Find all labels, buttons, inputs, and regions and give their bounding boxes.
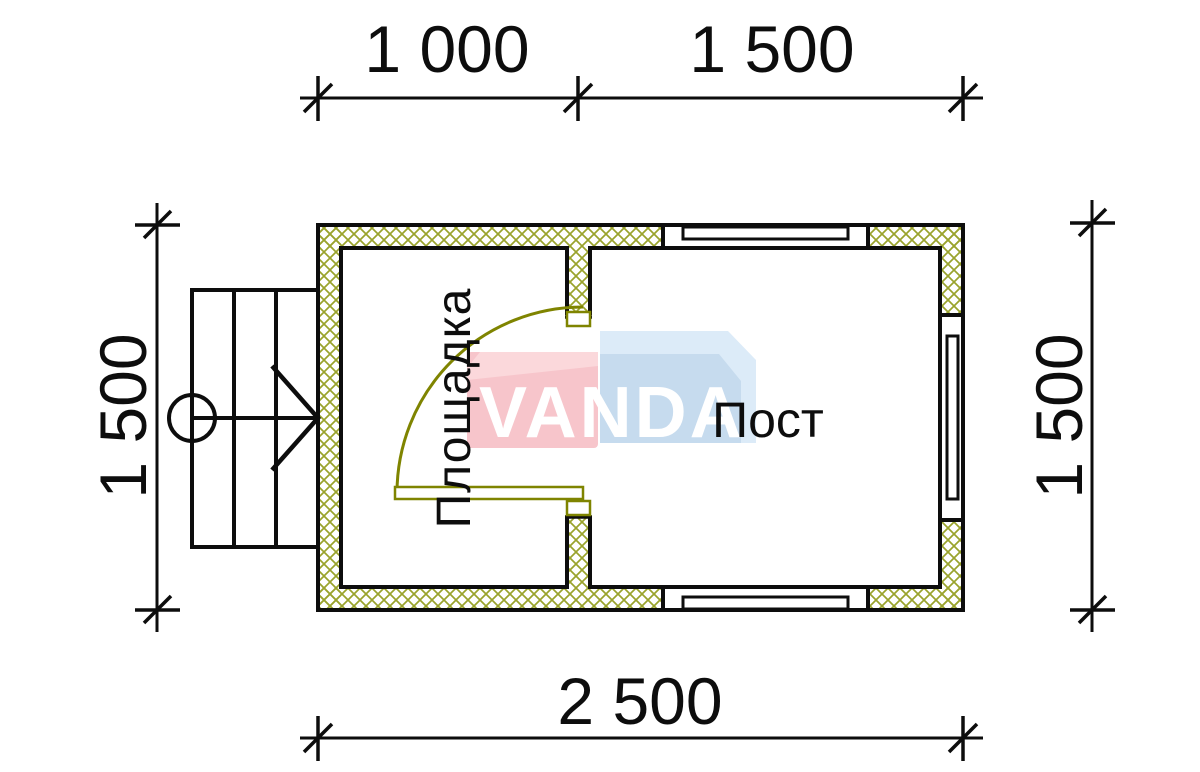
- dimension-top-left-value: 1 000: [364, 12, 529, 86]
- watermark-text: VANDA: [479, 373, 745, 453]
- room-label-right: Пост: [712, 392, 824, 448]
- window-bottom: [663, 587, 868, 610]
- window-right: [940, 315, 963, 520]
- dimension-top-right-value: 1 500: [689, 12, 854, 86]
- floor-plan-page: VANDA: [0, 0, 1200, 772]
- window-right-frame: [947, 336, 958, 499]
- room-label-left: Площадка: [428, 288, 481, 529]
- dimension-top: 1 000 1 500: [300, 12, 983, 121]
- dimension-left-value: 1 500: [86, 333, 160, 498]
- window-top-frame: [683, 227, 848, 239]
- door-leaf: [395, 487, 583, 499]
- entrance-steps: [169, 290, 318, 547]
- dimension-right: 1 500: [1022, 200, 1115, 632]
- door-jamb-block-top: [567, 312, 590, 326]
- window-top: [663, 225, 868, 248]
- dimension-right-value: 1 500: [1022, 333, 1096, 498]
- dimension-bottom-value: 2 500: [557, 664, 722, 738]
- dimension-bottom: 2 500: [300, 664, 983, 761]
- dimension-left: 1 500: [86, 203, 180, 632]
- door-jamb-block-bottom: [567, 501, 590, 515]
- window-bottom-frame: [683, 597, 848, 609]
- floor-plan-canvas: VANDA: [0, 0, 1200, 772]
